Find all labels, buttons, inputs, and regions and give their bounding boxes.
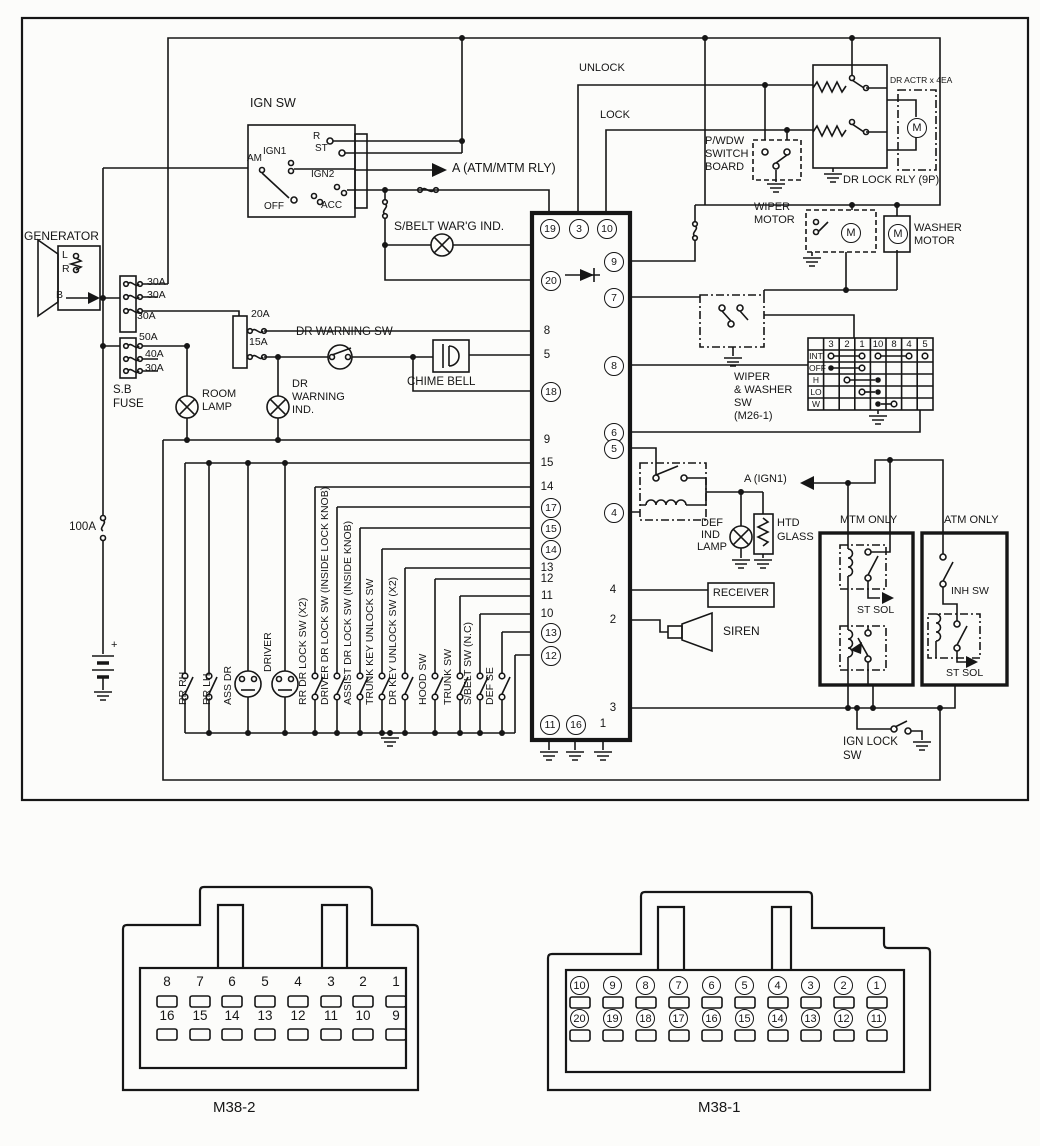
washer-motor-m-icon: M — [888, 224, 908, 244]
unit-pin-bottom-11: 11 — [540, 715, 560, 735]
fuse-30a-3: 30A — [137, 311, 156, 322]
m38-1-pin-10: 10 — [570, 976, 589, 995]
dr-warning-ind-2: WARNING — [292, 392, 345, 404]
chime-bell-symbol — [433, 340, 469, 372]
unit-pin-left-17c: 17 — [541, 498, 561, 518]
m38-2-pin-16: 16 — [155, 1008, 179, 1023]
st-sol-label-atm: ST SOL — [946, 668, 983, 679]
ign-sw-off: OFF — [264, 202, 284, 213]
dr-warning-ind-1: DR — [292, 379, 308, 391]
unit-pin-left-5: 5 — [539, 348, 555, 362]
unit-pin-left-15c: 15 — [541, 519, 561, 539]
m38-2-pin-15: 15 — [188, 1008, 212, 1023]
m38-1-pin-20: 20 — [570, 1009, 589, 1028]
wiper-table-col-8: 8 — [886, 340, 902, 350]
ign-sw-r: R — [313, 132, 320, 143]
m38-2-pin-6: 6 — [220, 974, 244, 989]
m38-1-pin-1: 1 — [867, 976, 886, 995]
unit-pin-right-8: 8 — [604, 356, 624, 376]
fuse-30a-4: 30A — [145, 363, 164, 374]
dr-warning-ind-3: IND. — [292, 405, 314, 417]
wiper-motor-label-2: MOTOR — [754, 215, 795, 227]
fuse-100a: 100A — [58, 521, 96, 533]
dr-actr-motor-m-icon: M — [907, 118, 927, 138]
ign-lock-sw-label-1: IGN LOCK — [843, 736, 898, 748]
unit-pin-bottom-1: 1 — [595, 717, 611, 731]
battery-symbol — [92, 656, 114, 677]
m38-1-pin-17: 17 — [669, 1009, 688, 1028]
m38-1-pin-11: 11 — [867, 1009, 886, 1028]
def-ind-lamp-3: LAMP — [697, 542, 727, 554]
pwdw-label-1: P/WDW — [705, 136, 744, 148]
bank-label-sbelt-sw: S/BELT SW (N.C) — [462, 622, 475, 705]
ign-lock-sw-label-2: SW — [843, 750, 862, 762]
m38-1-pin-15: 15 — [735, 1009, 754, 1028]
bank-label-def-se: DEF SE — [484, 667, 497, 705]
generator-terminal-b: B — [56, 290, 63, 301]
ign-sw-am: AM — [247, 154, 262, 165]
ground-symbols — [94, 174, 931, 760]
wiper-table-col-4: 4 — [901, 340, 917, 350]
sb-fuse-label-1: S.B — [113, 384, 132, 396]
wiper-table-col-1: 1 — [854, 340, 870, 350]
m38-1-pin-8: 8 — [636, 976, 655, 995]
ign-lock-switch-symbol — [891, 721, 911, 734]
m38-1-pin-7: 7 — [669, 976, 688, 995]
m38-2-pin-5: 5 — [253, 974, 277, 989]
m38-1-pin-5: 5 — [735, 976, 754, 995]
m38-1-pin-14: 14 — [768, 1009, 787, 1028]
unit-pin-left-12c: 12 — [541, 646, 561, 666]
dr-warning-switch-symbol — [328, 345, 352, 369]
washer-motor-label-1: WASHER — [914, 223, 962, 235]
chime-bell-label: CHIME BELL — [407, 376, 475, 388]
sbelt-warning-ind-label: S/BELT WAR'G IND. — [394, 220, 504, 233]
wiper-sw-label-2: & WASHER — [734, 385, 792, 397]
m38-2-pin-9: 9 — [384, 1008, 408, 1023]
m38-1-pin-16: 16 — [702, 1009, 721, 1028]
bank-label-rr-lh: RR LH — [201, 673, 214, 705]
room-lamp-label-2: LAMP — [202, 402, 232, 414]
ign-sw-acc: ACC — [321, 201, 342, 212]
m38-2-pin-12: 12 — [286, 1008, 310, 1023]
wiper-table-row-lo: LO — [809, 388, 823, 397]
m38-1-pin-18: 18 — [636, 1009, 655, 1028]
unit-pin-left-18: 18 — [541, 382, 561, 402]
ign-sw-title: IGN SW — [250, 97, 296, 111]
unit-pin-left-10: 10 — [539, 607, 555, 621]
m38-2-pin-10: 10 — [351, 1008, 375, 1023]
inh-sw-label: INH SW — [951, 586, 989, 597]
unit-pin-bottom-16: 16 — [566, 715, 586, 735]
atm-mtm-rly-arrow-label: A (ATM/MTM RLY) — [452, 162, 556, 176]
m38-2-pin-13: 13 — [253, 1008, 277, 1023]
lock-label: LOCK — [600, 110, 630, 122]
m38-2-pin-11: 11 — [319, 1008, 343, 1023]
unit-pin-right-4: 4 — [605, 583, 621, 597]
ign-sw-ign1: IGN1 — [263, 147, 286, 158]
wiper-table-col-2: 2 — [839, 340, 855, 350]
atm-only-label: ATM ONLY — [944, 515, 999, 527]
wiper-sw-label-4: (M26-1) — [734, 411, 773, 423]
unit-pin-right-2: 2 — [605, 613, 621, 627]
wiper-table-col-10: 10 — [870, 340, 886, 350]
bank-label-trunk-sw: TRUNK SW — [442, 649, 455, 705]
bank-label-driver: DRIVER — [262, 632, 275, 672]
m38-2-pin-14: 14 — [220, 1008, 244, 1023]
bank-label-trunk-key-unlock: TRUNK KEY UNLOCK SW — [364, 579, 377, 705]
bank-label-assist-dr-lock: ASSIST DR LOCK SW (INSIDE KNOB) — [342, 521, 355, 705]
connector-label-m38-1: M38-1 — [698, 1100, 741, 1116]
htd-glass-1: HTD — [777, 518, 800, 530]
mtm-only-label: MTM ONLY — [840, 515, 897, 527]
unit-pin-left-15: 15 — [539, 456, 555, 470]
fuse-40a: 40A — [145, 349, 164, 360]
unit-pin-left-14c: 14 — [541, 540, 561, 560]
wiper-motor-m-icon: M — [841, 223, 861, 243]
unit-pin-left-13c: 13 — [541, 623, 561, 643]
connector-label-m38-2: M38-2 — [213, 1100, 256, 1116]
dr-lock-rly-label: DR LOCK RLY (9P) — [843, 175, 939, 187]
pwdw-label-2: SWITCH — [705, 149, 748, 161]
unit-pin-right-9: 9 — [604, 252, 624, 272]
m38-1-pin-2: 2 — [834, 976, 853, 995]
wiper-table-col-3: 3 — [823, 340, 839, 350]
wiper-motor-label-1: WIPER — [754, 202, 790, 214]
bank-label-driver-dr-lock: DRIVER DR LOCK SW (INSIDE LOCK KNOB) — [319, 487, 332, 705]
m38-2-pin-1: 1 — [384, 974, 408, 989]
sb-fuse-blocks — [120, 276, 247, 378]
bank-label-ass-dr: ASS DR — [222, 666, 235, 705]
unit-pin-right-3: 3 — [605, 701, 621, 715]
m38-1-pin-12: 12 — [834, 1009, 853, 1028]
fuse-30a-1: 30A — [147, 277, 166, 288]
unit-pin-right-7: 7 — [604, 288, 624, 308]
m38-2-pin-3: 3 — [319, 974, 343, 989]
wiper-sw-label-1: WIPER — [734, 372, 770, 384]
m38-1-pin-13: 13 — [801, 1009, 820, 1028]
mtm-atm-group — [820, 533, 1007, 685]
m38-1-pin-19: 19 — [603, 1009, 622, 1028]
sb-fuse-label-2: FUSE — [113, 398, 144, 410]
generator-terminal-r: R — [62, 264, 70, 275]
room-lamp-label-1: ROOM — [202, 389, 236, 401]
unit-pin-left-8: 8 — [539, 324, 555, 338]
unit-pin-right-5: 5 — [604, 439, 624, 459]
unit-pin-left-9: 9 — [539, 433, 555, 447]
battery-plus: + — [111, 640, 117, 652]
wiper-table-col-5: 5 — [917, 340, 933, 350]
m38-1-pin-6: 6 — [702, 976, 721, 995]
m38-2-pin-4: 4 — [286, 974, 310, 989]
washer-motor-label-2: MOTOR — [914, 236, 955, 248]
bank-label-dr-key-unlock: DR KEY UNLOCK SW (X2) — [387, 577, 400, 705]
wiper-table-row-int: INT — [809, 352, 823, 361]
ign-sw-ign2: IGN2 — [311, 170, 334, 181]
wiper-table-row-off: OFF — [809, 364, 823, 373]
dr-warning-sw-label: DR WARNING SW — [296, 326, 393, 338]
m38-1-pin-9: 9 — [603, 976, 622, 995]
fuse-30a-2: 30A — [147, 290, 166, 301]
st-sol-label-mtm: ST SOL — [857, 605, 894, 616]
fuse-50a: 50A — [139, 332, 158, 343]
m38-1-pin-3: 3 — [801, 976, 820, 995]
unit-pin-top-19: 19 — [540, 219, 560, 239]
unit-pin-left-11: 11 — [539, 589, 555, 603]
unit-pin-right-4c: 4 — [604, 503, 624, 523]
unlock-label: UNLOCK — [579, 63, 625, 75]
bank-label-rr-rh: RR RH — [177, 672, 190, 705]
a-ign1-arrow-label: A (IGN1) — [744, 474, 787, 486]
dr-actr-label: DR ACTR x 4EA — [890, 76, 952, 85]
htd-glass-2: GLASS — [777, 532, 814, 544]
m38-2-pin-2: 2 — [351, 974, 375, 989]
receiver-label: RECEIVER — [710, 588, 772, 600]
unit-pin-left-12: 12 — [539, 572, 555, 586]
bank-label-hood-sw: HOOD SW — [417, 654, 430, 705]
fuse-20a: 20A — [251, 309, 270, 320]
m38-2-pin-7: 7 — [188, 974, 212, 989]
wiper-table-row-h: H — [809, 376, 823, 385]
wiper-sw-label-3: SW — [734, 398, 752, 410]
generator-label: GENERATOR — [24, 230, 99, 243]
generator-symbol — [38, 240, 100, 316]
bank-label-rr-dr-lock: RR DR LOCK SW (X2) — [297, 598, 310, 705]
m38-1-pin-4: 4 — [768, 976, 787, 995]
fuse-15a: 15A — [249, 337, 268, 348]
m38-2-pin-8: 8 — [155, 974, 179, 989]
frame — [22, 18, 1028, 800]
unit-pin-left-20: 20 — [541, 271, 561, 291]
unit-pin-top-10: 10 — [597, 219, 617, 239]
generator-terminal-l: L — [62, 250, 68, 261]
wiper-table-row-w: W — [809, 400, 823, 409]
pwdw-label-3: BOARD — [705, 162, 744, 174]
unit-pin-left-14: 14 — [539, 480, 555, 494]
wiring-diagram-page: GENERATOR L R B IGN SW AM OFF R ST IGN1 … — [0, 0, 1040, 1146]
unit-pin-top-3: 3 — [569, 219, 589, 239]
ign-sw-st: ST — [315, 144, 328, 155]
siren-label: SIREN — [723, 625, 760, 638]
